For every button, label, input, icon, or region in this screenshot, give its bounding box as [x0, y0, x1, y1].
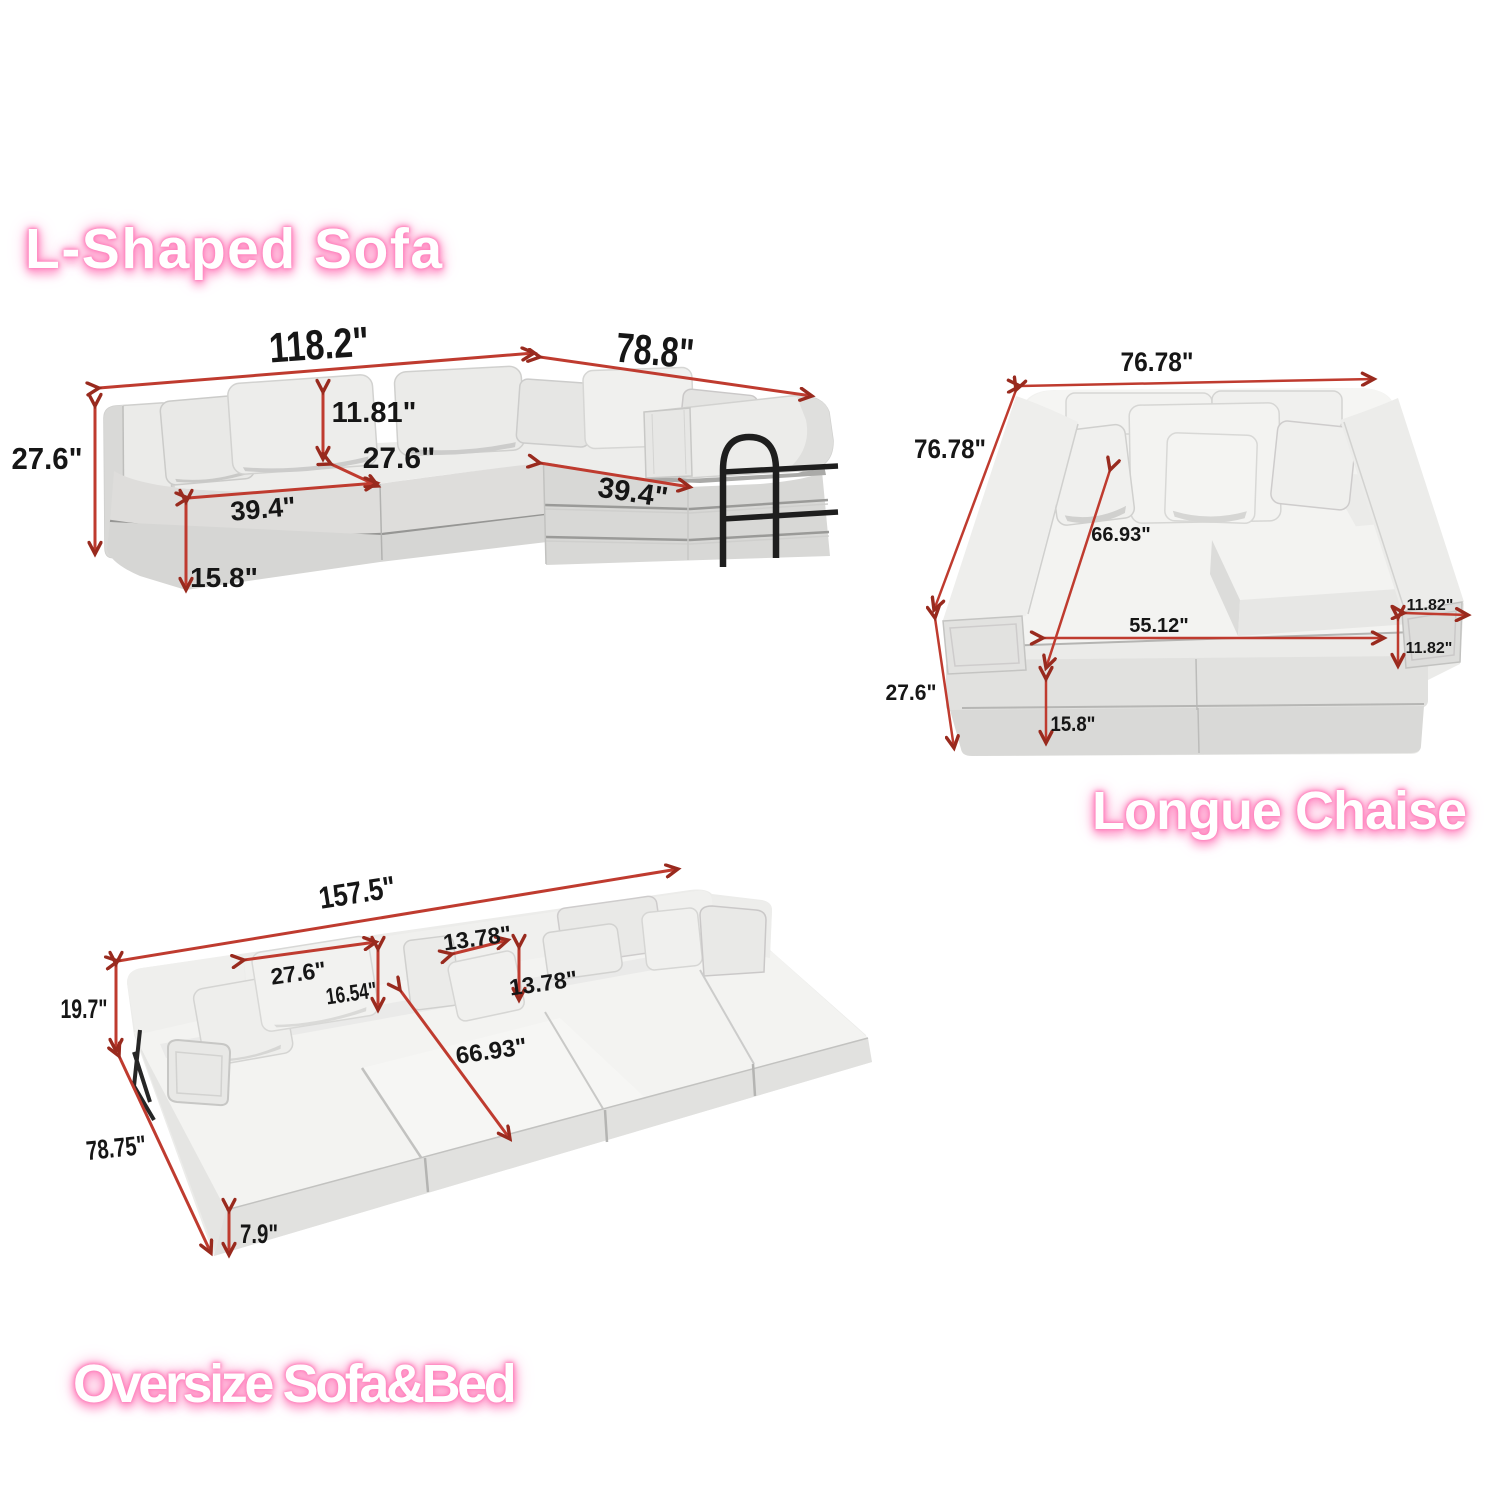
svg-text:118.2": 118.2"	[267, 318, 370, 372]
svg-text:27.6": 27.6"	[12, 441, 83, 476]
svg-text:11.82": 11.82"	[1407, 597, 1454, 614]
svg-text:27.6": 27.6"	[363, 442, 436, 475]
svg-text:76.78": 76.78"	[1121, 347, 1194, 377]
svg-text:7.9": 7.9"	[240, 1219, 278, 1249]
svg-text:78.8": 78.8"	[614, 324, 696, 378]
svg-text:15.8": 15.8"	[1051, 713, 1096, 736]
svg-text:11.82": 11.82"	[1406, 640, 1453, 657]
svg-text:15.8": 15.8"	[190, 562, 258, 593]
svg-text:76.78": 76.78"	[914, 434, 986, 464]
svg-text:55.12": 55.12"	[1129, 615, 1189, 637]
svg-text:66.93": 66.93"	[1091, 524, 1151, 546]
svg-text:78.75": 78.75"	[85, 1130, 148, 1166]
svg-text:11.81": 11.81"	[332, 397, 417, 429]
svg-text:27.6": 27.6"	[886, 680, 937, 705]
svg-text:39.4": 39.4"	[229, 491, 297, 527]
svg-text:157.5": 157.5"	[316, 869, 398, 916]
svg-text:19.7": 19.7"	[61, 994, 108, 1024]
